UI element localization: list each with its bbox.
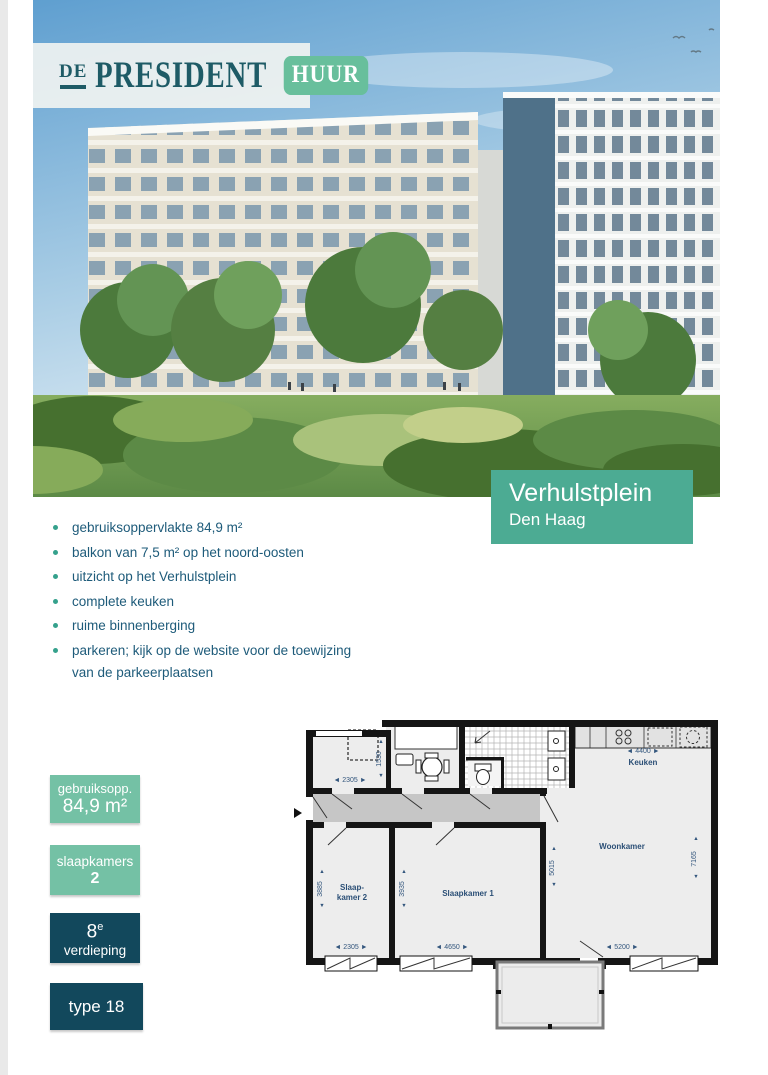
feature-item: complete keuken <box>53 591 371 613</box>
dim-bedroom1-width: ◄ 4650 ► <box>435 944 468 951</box>
page-edge-strip <box>0 0 8 1075</box>
dim-bedroom1-height: 3935 <box>399 881 406 897</box>
feature-text: ruime binnenberging <box>72 618 195 633</box>
dim-living-width: ◄ 5200 ► <box>605 944 638 951</box>
feature-text: complete keuken <box>72 594 174 609</box>
bullet-icon <box>53 648 58 653</box>
feature-item: ruime binnenberging <box>53 615 371 637</box>
svg-text:▼: ▼ <box>693 874 698 880</box>
svg-text:▼: ▼ <box>551 882 556 888</box>
svg-text:▼: ▼ <box>378 773 383 779</box>
brochure-page: DE PRESIDENT HUUR Verhulstplein Den Haag… <box>0 0 768 1075</box>
kitchen-counter <box>575 726 711 748</box>
logo-banner: DE PRESIDENT HUUR <box>33 43 310 108</box>
stat-box-area: gebruiksopp. 84,9 m² <box>50 775 140 823</box>
feature-item: uitzicht op het Verhulstplein <box>53 566 371 588</box>
feature-item: balkon van 7,5 m² op het noord-oosten <box>53 542 371 564</box>
dim-bedroom2-height: 3885 <box>317 881 324 897</box>
bullet-icon <box>53 623 58 628</box>
dim-kitchen-width: ◄ 4400 ► <box>626 748 659 755</box>
svg-text:▲: ▲ <box>693 836 698 842</box>
location-name: Verhulstplein <box>509 478 693 508</box>
entry-arrow-icon <box>294 808 302 818</box>
stat-area-label: gebruiksopp. <box>50 781 140 796</box>
bullet-icon <box>53 525 58 530</box>
bullet-icon <box>53 574 58 579</box>
stat-floor-value: 8e <box>50 917 140 942</box>
dim-storage-height: 1530 <box>376 751 383 767</box>
room-label-bedroom2-line1: Slaap- <box>340 883 364 892</box>
stat-floor-label: verdieping <box>50 942 140 959</box>
floorplan: ◄ 2305 ► ◄ 4400 ► Keuken Woonkamer Slaap… <box>292 712 722 1037</box>
feature-text: uitzicht op het Verhulstplein <box>72 569 236 584</box>
feature-item: parkeren; kijk op de website voor de toe… <box>53 640 371 684</box>
balcony <box>496 962 604 1029</box>
location-card: Verhulstplein Den Haag <box>491 470 693 544</box>
svg-text:▲: ▲ <box>378 739 383 745</box>
dim-living-inner-height: 5015 <box>549 860 556 876</box>
feature-text: gebruiksoppervlakte 84,9 m² <box>72 520 242 535</box>
stat-box-floor: 8e verdieping <box>50 913 140 963</box>
stat-floor-number: 8 <box>87 921 98 942</box>
logo-prefix: DE <box>59 62 87 89</box>
bullet-icon <box>53 599 58 604</box>
room-label-living: Woonkamer <box>599 842 645 851</box>
svg-text:▲: ▲ <box>319 869 324 875</box>
bullet-icon <box>53 550 58 555</box>
dim-living-outer-height: 7165 <box>691 851 698 867</box>
stat-bedrooms-value: 2 <box>50 870 140 888</box>
stat-area-value: 84,9 m² <box>50 796 140 817</box>
logo-badge-huur: HUUR <box>284 56 368 95</box>
room-label-kitchen: Keuken <box>629 758 658 767</box>
feature-text: balkon van 7,5 m² op het noord-oosten <box>72 545 304 560</box>
logo-prefix-text: DE <box>59 62 87 82</box>
logo-title: PRESIDENT <box>95 54 267 97</box>
svg-text:▼: ▼ <box>319 903 324 909</box>
location-city: Den Haag <box>509 508 693 532</box>
svg-text:▼: ▼ <box>401 903 406 909</box>
stat-box-type: type 18 <box>50 983 143 1030</box>
room-label-bedroom1: Slaapkamer 1 <box>442 889 494 898</box>
toilet-icon <box>475 764 491 785</box>
feature-text: parkeren; kijk op de website voor de toe… <box>72 643 351 680</box>
stat-box-bedrooms: slaapkamers 2 <box>50 845 140 895</box>
stat-type-value: type 18 <box>50 997 143 1017</box>
feature-list: gebruiksoppervlakte 84,9 m² balkon van 7… <box>53 517 383 686</box>
dim-bedroom2-width: ◄ 2305 ► <box>334 944 367 951</box>
logo-underline <box>60 85 86 89</box>
stat-floor-suffix: e <box>97 921 103 933</box>
floorplan-bathroom <box>465 726 569 788</box>
svg-text:▲: ▲ <box>401 869 406 875</box>
room-label-bedroom2-line2: kamer 2 <box>337 893 368 902</box>
feature-item: gebruiksoppervlakte 84,9 m² <box>53 517 371 539</box>
floorplan-corridor <box>313 794 540 822</box>
stat-bedrooms-label: slaapkamers <box>50 853 140 870</box>
svg-text:▲: ▲ <box>551 846 556 852</box>
dim-storage-width: ◄ 2305 ► <box>333 777 366 784</box>
